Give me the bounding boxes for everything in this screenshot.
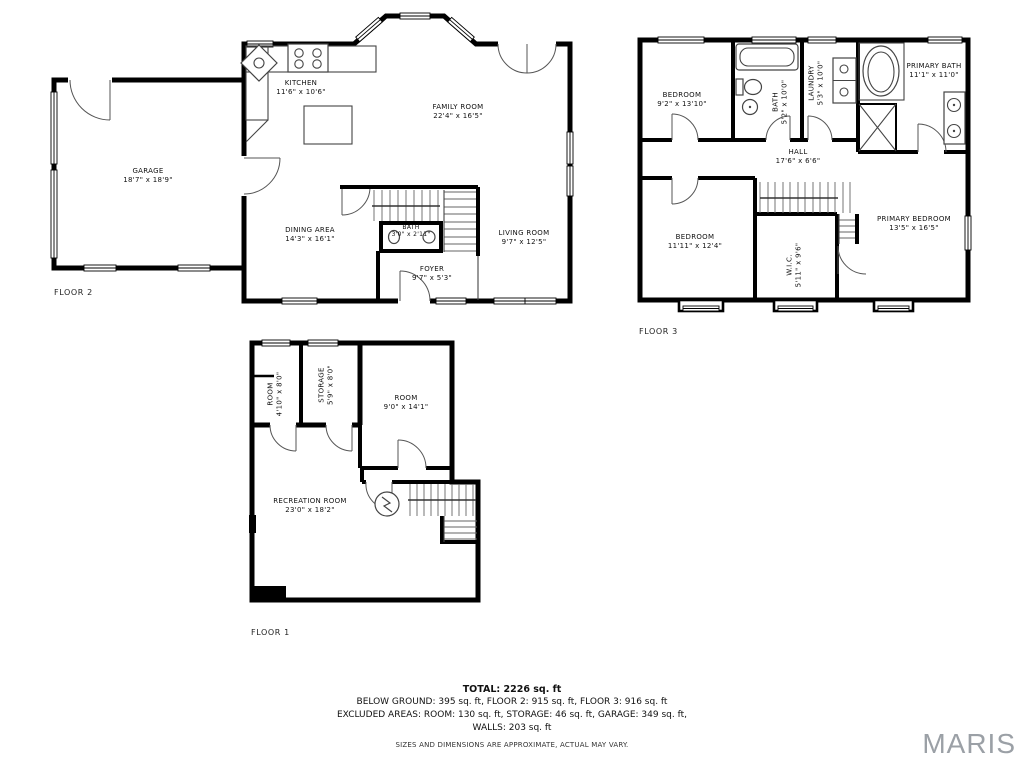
floorplan-canvas <box>0 0 1024 768</box>
room-label-kitchen: KITCHEN 11'6" x 10'6" <box>276 79 326 97</box>
double-vanity-icon <box>944 92 965 144</box>
excluded-areas: EXCLUDED AREAS: ROOM: 130 sq. ft, STORAG… <box>0 709 1024 722</box>
room-label-bedroom1: BEDROOM 9'2" x 13'10" <box>657 91 707 109</box>
toilet-icon <box>736 79 762 95</box>
room-label-bedroom2: BEDROOM 11'11" x 12'4" <box>668 233 722 251</box>
room-label-dining-area: DINING AREA 14'3" x 16'1" <box>285 226 335 244</box>
total-area: TOTAL: 2226 sq. ft <box>0 683 1024 696</box>
oval-tub-icon <box>859 43 904 100</box>
room-label-foyer: FOYER 9'7" x 5'3" <box>412 265 452 283</box>
room-label-bath2: BATH 3'0" x 2'11" <box>392 224 431 238</box>
room-label-laundry: LAUNDRY 5'3" x 10'0" <box>808 61 827 106</box>
room-label-living-room: LIVING ROOM 9'7" x 12'5" <box>499 229 550 247</box>
floor1-openings <box>270 422 426 485</box>
room-label-family-room: FAMILY ROOM 22'4" x 16'5" <box>433 103 484 121</box>
floor-areas: BELOW GROUND: 395 sq. ft, FLOOR 2: 915 s… <box>0 696 1024 709</box>
floorplan-page: KITCHEN 11'6" x 10'6" FAMILY ROOM 22'4" … <box>0 0 1024 768</box>
floor3-window-bays <box>679 300 913 311</box>
area-summary: TOTAL: 2226 sq. ft BELOW GROUND: 395 sq.… <box>0 683 1024 735</box>
floor2-caption: FLOOR 2 <box>54 288 93 297</box>
washer-dryer-icon <box>833 58 856 103</box>
room-label-hall: HALL 17'6" x 6'6" <box>776 148 821 166</box>
room-label-primary-bedroom: PRIMARY BEDROOM 13'5" x 16'5" <box>877 215 951 233</box>
room-label-storage: STORAGE 5'9" x 8'0" <box>318 365 337 405</box>
bathtub-icon <box>736 44 798 70</box>
floor2-plan <box>51 13 573 305</box>
room-label-garage: GARAGE 18'7" x 18'9" <box>123 167 173 185</box>
walls-area: WALLS: 203 sq. ft <box>0 722 1024 735</box>
water-heater-icon <box>375 492 399 516</box>
floor1-caption: FLOOR 1 <box>251 628 290 637</box>
disclaimer-text: SIZES AND DIMENSIONS ARE APPROXIMATE, AC… <box>0 741 1024 749</box>
shower-icon <box>859 104 896 151</box>
sink-icon <box>743 100 758 115</box>
room-label-primary-bath: PRIMARY BATH 11'1" x 11'0" <box>906 62 961 80</box>
kitchen-island <box>304 106 352 144</box>
floor3-caption: FLOOR 3 <box>639 327 678 336</box>
room-label-recreation-room: RECREATION ROOM 23'0" x 18'2" <box>273 497 346 515</box>
room-label-room: ROOM 9'0" x 14'1" <box>384 394 429 412</box>
stove-icon <box>288 44 328 72</box>
maris-logo: MARIS <box>922 728 1016 760</box>
room-label-room-small: ROOM 4'10" x 8'0" <box>267 372 286 417</box>
room-label-wic: W.I.C. 5'11" x 9'6" <box>786 243 805 288</box>
room-label-bath3: BATH 5'2" x 10'0" <box>772 80 791 125</box>
